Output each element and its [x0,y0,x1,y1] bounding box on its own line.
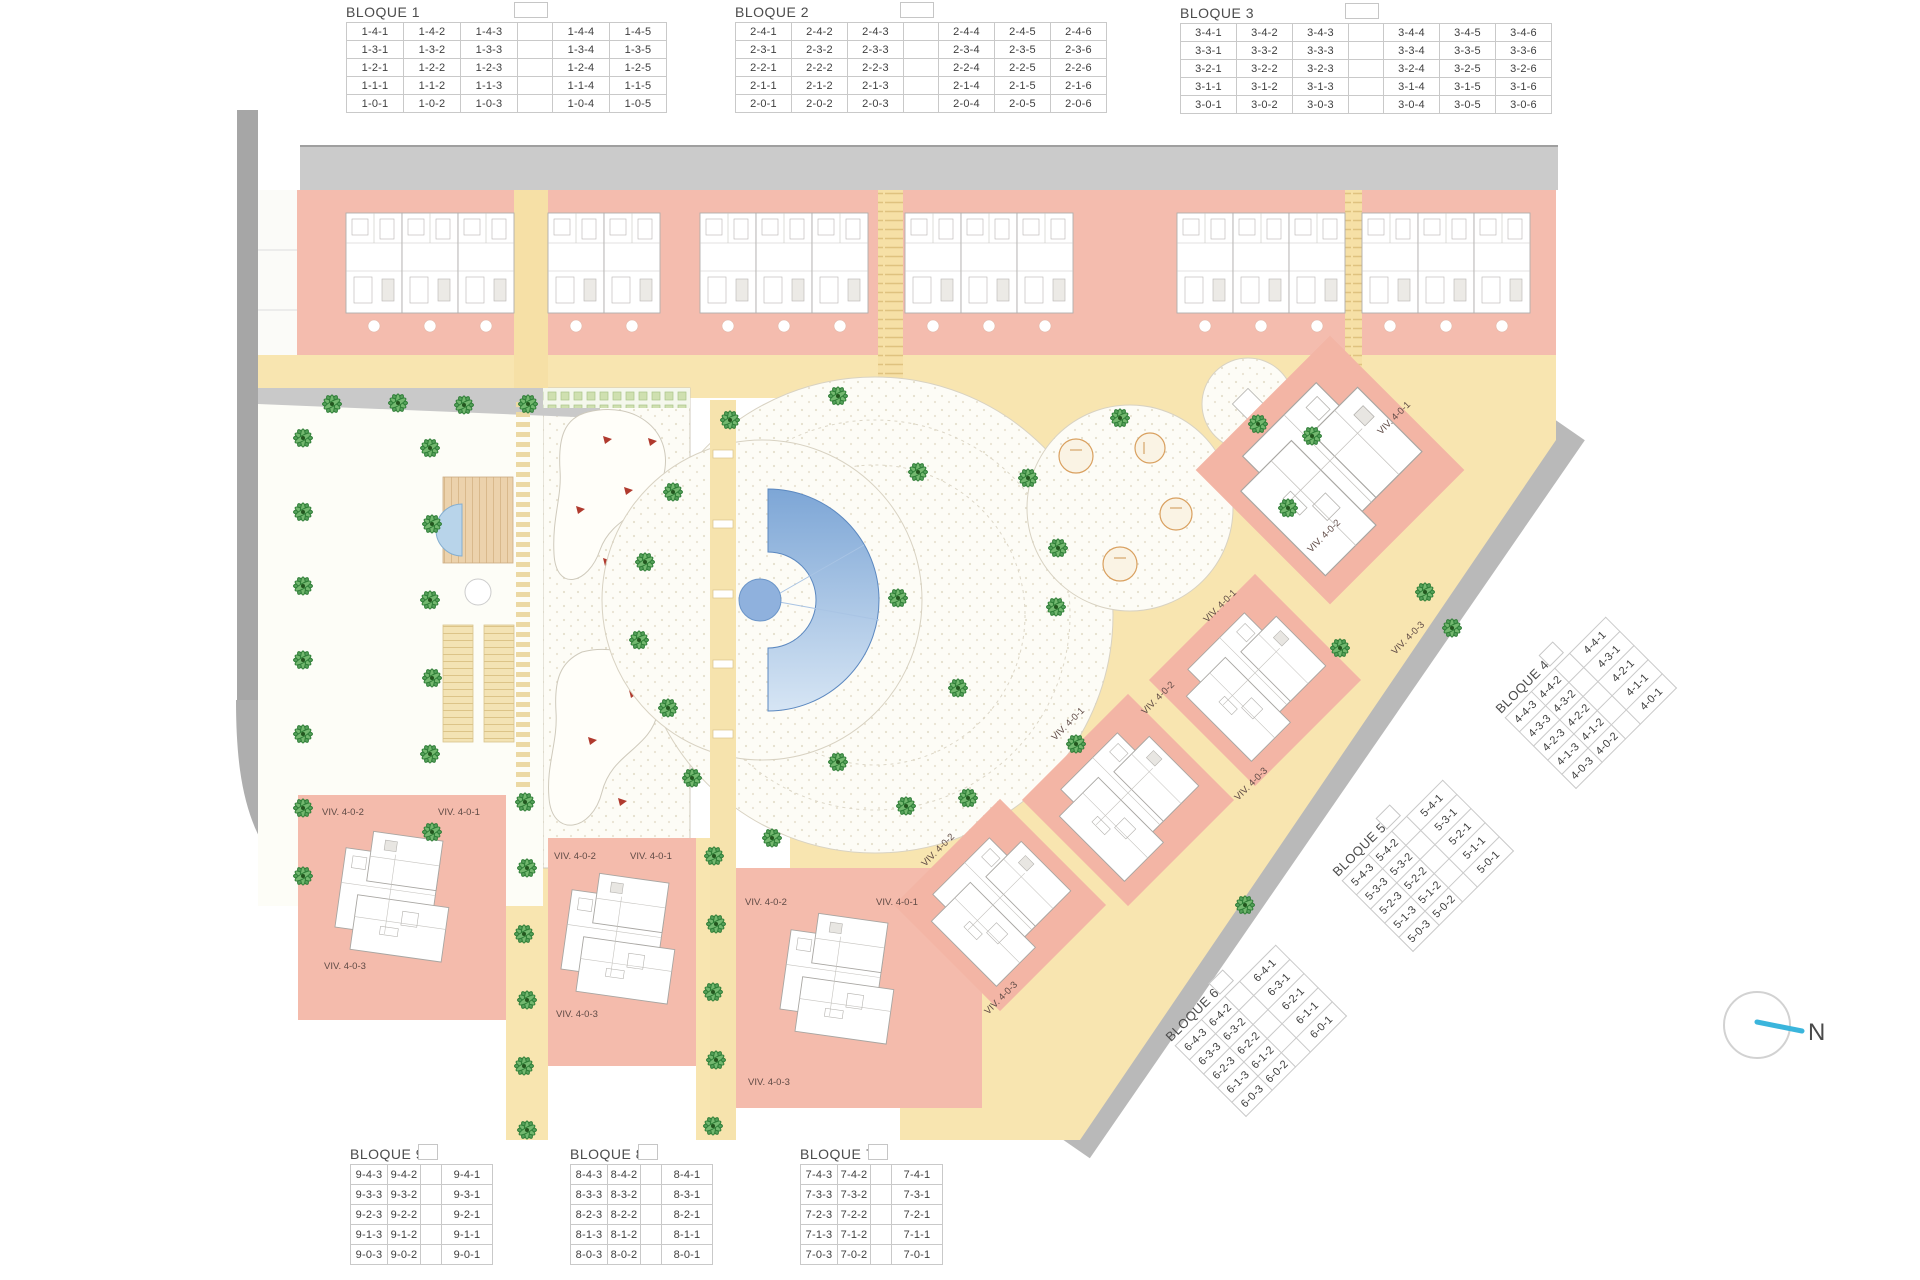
unit-cell: 8-4-3 [571,1165,608,1185]
unit-cell: 3-1-4 [1384,78,1440,96]
unit-cell: 2-2-4 [939,59,995,77]
north-label: N [1808,1019,1825,1046]
unit-cell: 9-1-1 [442,1225,493,1245]
unit-cell: 3-1-3 [1293,78,1349,96]
unit-cell: 3-3-6 [1496,42,1552,60]
stair-core-box [1345,3,1379,19]
unit-cell: 2-3-6 [1051,41,1107,59]
unit-cell: 1-3-5 [610,41,667,59]
unit-cell: 2-2-1 [736,59,792,77]
unit-cell: 1-2-1 [347,59,404,77]
unit-cell: 9-4-3 [351,1165,388,1185]
gap-cell [641,1245,662,1265]
unit-cell: 3-0-1 [1181,96,1237,114]
unit-cell: 1-2-3 [461,59,518,77]
gap-cell [871,1165,892,1185]
unit-cell: 9-4-1 [442,1165,493,1185]
unit-cell: 9-3-3 [351,1185,388,1205]
unit-cell: 3-2-6 [1496,60,1552,78]
stair-core-box [514,2,548,18]
unit-cell: 2-3-2 [792,41,848,59]
bloque-8-table: BLOQUE 88-4-38-4-28-4-18-3-38-3-28-3-18-… [570,1146,713,1265]
unit-cell: 2-4-6 [1051,23,1107,41]
unit-cell: 7-3-3 [801,1185,838,1205]
unit-cell: 1-3-4 [553,41,610,59]
unit-cell: 2-1-1 [736,77,792,95]
unit-cell: 1-0-4 [553,95,610,113]
gap-cell [518,95,553,113]
unit-cell: 1-1-4 [553,77,610,95]
gap-cell [641,1185,662,1205]
pool-path [710,400,736,1140]
unit-cell: 7-1-3 [801,1225,838,1245]
gap-cell [518,41,553,59]
unit-cell: 1-0-1 [347,95,404,113]
unit-cell: 8-0-2 [608,1245,641,1265]
unit-cell: 8-2-2 [608,1205,641,1225]
unit-cell: 7-4-1 [892,1165,943,1185]
bloque-title: BLOQUE 7 [800,1146,874,1162]
unit-cell: 1-2-2 [404,59,461,77]
unit-cell: 2-1-3 [848,77,904,95]
gap-cell [641,1205,662,1225]
unit-cell: 2-0-6 [1051,95,1107,113]
site-plan: VIV. 4-0-2 VIV. 4-0-1 VIV. 4-0-3 VIV. 4-… [0,0,1920,1280]
unit-cell: 9-2-3 [351,1205,388,1225]
unit-cell: 7-0-1 [892,1245,943,1265]
unit-cell: 3-4-6 [1496,24,1552,42]
unit-cell: 1-4-1 [347,23,404,41]
unit-cell: 3-0-5 [1440,96,1496,114]
unit-cell: 3-1-1 [1181,78,1237,96]
unit-cell: 1-3-2 [404,41,461,59]
unit-cell: 2-2-3 [848,59,904,77]
unit-cell: 1-4-4 [553,23,610,41]
gap-cell [421,1165,442,1185]
unit-cell: 1-1-5 [610,77,667,95]
unit-cell: 9-4-2 [388,1165,421,1185]
bloque-title: BLOQUE 8 [570,1146,644,1162]
unit-cell: 7-2-3 [801,1205,838,1225]
bloque-title: BLOQUE 1 [346,4,420,20]
unit-cell: 7-2-2 [838,1205,871,1225]
unit-cell: 2-0-5 [995,95,1051,113]
unit-cell: 7-4-2 [838,1165,871,1185]
unit-cell: 8-3-2 [608,1185,641,1205]
unit-cell: 8-3-1 [662,1185,713,1205]
gap-cell [904,95,939,113]
unit-cell: 1-1-2 [404,77,461,95]
unit-cell: 7-3-1 [892,1185,943,1205]
unit-cell: 3-1-5 [1440,78,1496,96]
unit-cell: 1-3-3 [461,41,518,59]
gap-cell [641,1165,662,1185]
gap-cell [904,23,939,41]
unit-cell: 2-4-4 [939,23,995,41]
stair-core-box [868,1144,888,1160]
unit-cell: 3-1-2 [1237,78,1293,96]
left-street [237,110,258,702]
gap-cell [518,77,553,95]
viv-label: VIV. 4-0-3 [748,1077,790,1088]
unit-cell: 2-2-5 [995,59,1051,77]
unit-cell: 3-0-2 [1237,96,1293,114]
gap-cell [1349,24,1384,42]
unit-cell: 3-3-4 [1384,42,1440,60]
unit-cell: 9-1-2 [388,1225,421,1245]
unit-cell: 1-2-5 [610,59,667,77]
unit-cell: 1-0-2 [404,95,461,113]
unit-cell: 9-0-3 [351,1245,388,1265]
bloque-2-table: BLOQUE 22-4-12-4-22-4-32-4-42-4-52-4-62-… [735,4,1107,113]
gap-cell [421,1205,442,1225]
unit-cell: 9-3-2 [388,1185,421,1205]
sunbed-row-2 [484,625,514,742]
unit-cell: 2-0-4 [939,95,995,113]
unit-cell: 2-1-6 [1051,77,1107,95]
unit-cell: 2-3-4 [939,41,995,59]
bloque-7-table: BLOQUE 77-4-37-4-27-4-17-3-37-3-27-3-17-… [800,1146,943,1265]
unit-cell: 9-2-1 [442,1205,493,1225]
unit-cell: 8-2-1 [662,1205,713,1225]
viv-label: VIV. 4-0-2 [745,897,787,908]
unit-cell: 1-4-3 [461,23,518,41]
gap-cell [904,59,939,77]
gap-cell [421,1225,442,1245]
unit-cell: 9-0-1 [442,1245,493,1265]
viv-label: VIV. 4-0-1 [438,807,480,818]
unit-cell: 3-4-4 [1384,24,1440,42]
unit-cell: 8-3-3 [571,1185,608,1205]
unit-cell: 3-3-1 [1181,42,1237,60]
unit-cell: 1-2-4 [553,59,610,77]
unit-cell: 3-2-1 [1181,60,1237,78]
unit-cell: 9-1-3 [351,1225,388,1245]
unit-cell: 3-1-6 [1496,78,1552,96]
bloque-3-table: BLOQUE 33-4-13-4-23-4-33-4-43-4-53-4-63-… [1180,5,1552,114]
bloque-1-table: BLOQUE 11-4-11-4-21-4-31-4-41-4-51-3-11-… [346,4,667,113]
viv-label: VIV. 4-0-1 [876,897,918,908]
unit-cell: 2-1-2 [792,77,848,95]
unit-cell: 2-4-1 [736,23,792,41]
unit-cell: 8-0-1 [662,1245,713,1265]
unit-cell: 3-4-2 [1237,24,1293,42]
unit-cell: 3-0-6 [1496,96,1552,114]
gap-cell [871,1245,892,1265]
gap-cell [641,1225,662,1245]
unit-cell: 8-1-2 [608,1225,641,1245]
unit-cell: 1-0-5 [610,95,667,113]
unit-cell: 3-2-5 [1440,60,1496,78]
gap-cell [904,77,939,95]
unit-cell: 3-2-2 [1237,60,1293,78]
unit-cell: 1-3-1 [347,41,404,59]
unit-cell: 2-0-2 [792,95,848,113]
unit-cell: 7-0-3 [801,1245,838,1265]
passage-1 [514,190,548,398]
gap-cell [904,41,939,59]
unit-cell: 8-2-3 [571,1205,608,1225]
unit-cell: 8-1-3 [571,1225,608,1245]
viv-label: VIV. 4-0-3 [324,961,366,972]
unit-cell: 1-4-2 [404,23,461,41]
garden-circle [465,579,491,605]
unit-cell: 3-3-2 [1237,42,1293,60]
unit-cell: 7-4-3 [801,1165,838,1185]
stair-passage-1 [878,190,903,398]
unit-cell: 7-3-2 [838,1185,871,1205]
gap-cell [518,59,553,77]
unit-cell: 2-0-1 [736,95,792,113]
unit-cell: 2-2-6 [1051,59,1107,77]
bloque-9-table: BLOQUE 99-4-39-4-29-4-19-3-39-3-29-3-19-… [350,1146,493,1265]
sunbed-row-1 [443,625,473,742]
bloque-title: BLOQUE 9 [350,1146,424,1162]
unit-cell: 3-3-5 [1440,42,1496,60]
stair-core-box [418,1144,438,1160]
unit-cell: 8-0-3 [571,1245,608,1265]
unit-cell: 3-2-4 [1384,60,1440,78]
gap-cell [421,1245,442,1265]
unit-cell: 2-1-4 [939,77,995,95]
unit-cell: 2-3-1 [736,41,792,59]
unit-cell: 3-0-3 [1293,96,1349,114]
gap-cell [518,23,553,41]
unit-cell: 2-2-2 [792,59,848,77]
unit-cell: 1-4-5 [610,23,667,41]
unit-cell: 3-0-4 [1384,96,1440,114]
unit-cell: 8-4-1 [662,1165,713,1185]
pool-island [739,579,781,621]
unit-cell: 2-3-3 [848,41,904,59]
unit-cell: 9-3-1 [442,1185,493,1205]
viv-label: VIV. 4-0-3 [556,1009,598,1020]
stair-core-box [638,1144,658,1160]
unit-cell: 2-4-2 [792,23,848,41]
unit-cell: 2-3-5 [995,41,1051,59]
unit-cell: 3-2-3 [1293,60,1349,78]
gap-cell [1349,96,1384,114]
unit-cell: 9-2-2 [388,1205,421,1225]
hedge-row [543,388,690,408]
unit-cell: 3-4-1 [1181,24,1237,42]
gap-cell [1349,78,1384,96]
unit-cell: 1-0-3 [461,95,518,113]
unit-cell: 1-1-1 [347,77,404,95]
unit-cell: 3-4-3 [1293,24,1349,42]
unit-cell: 2-4-5 [995,23,1051,41]
unit-cell: 2-0-3 [848,95,904,113]
unit-cell: 2-1-5 [995,77,1051,95]
unit-cell: 2-4-3 [848,23,904,41]
gap-cell [871,1185,892,1205]
compass: N [1724,992,1825,1058]
unit-cell: 8-1-1 [662,1225,713,1245]
unit-cell: 7-0-2 [838,1245,871,1265]
viv-label: VIV. 4-0-2 [554,851,596,862]
activity-circle [1027,405,1233,611]
bloque-title: BLOQUE 2 [735,4,809,20]
stair-core-box [900,2,934,18]
unit-cell: 1-1-3 [461,77,518,95]
bloque-title: BLOQUE 3 [1180,5,1254,21]
unit-cell: 9-0-2 [388,1245,421,1265]
gap-cell [1349,60,1384,78]
top-street [300,145,1558,190]
gap-cell [871,1225,892,1245]
viv-label: VIV. 4-0-2 [322,807,364,818]
gap-cell [1349,42,1384,60]
unit-cell: 7-1-1 [892,1225,943,1245]
unit-cell: 7-2-1 [892,1205,943,1225]
gap-cell [421,1185,442,1205]
gap-cell [871,1205,892,1225]
unit-cell: 3-4-5 [1440,24,1496,42]
viv-label: VIV. 4-0-1 [630,851,672,862]
unit-cell: 8-4-2 [608,1165,641,1185]
unit-cell: 3-3-3 [1293,42,1349,60]
unit-cell: 7-1-2 [838,1225,871,1245]
